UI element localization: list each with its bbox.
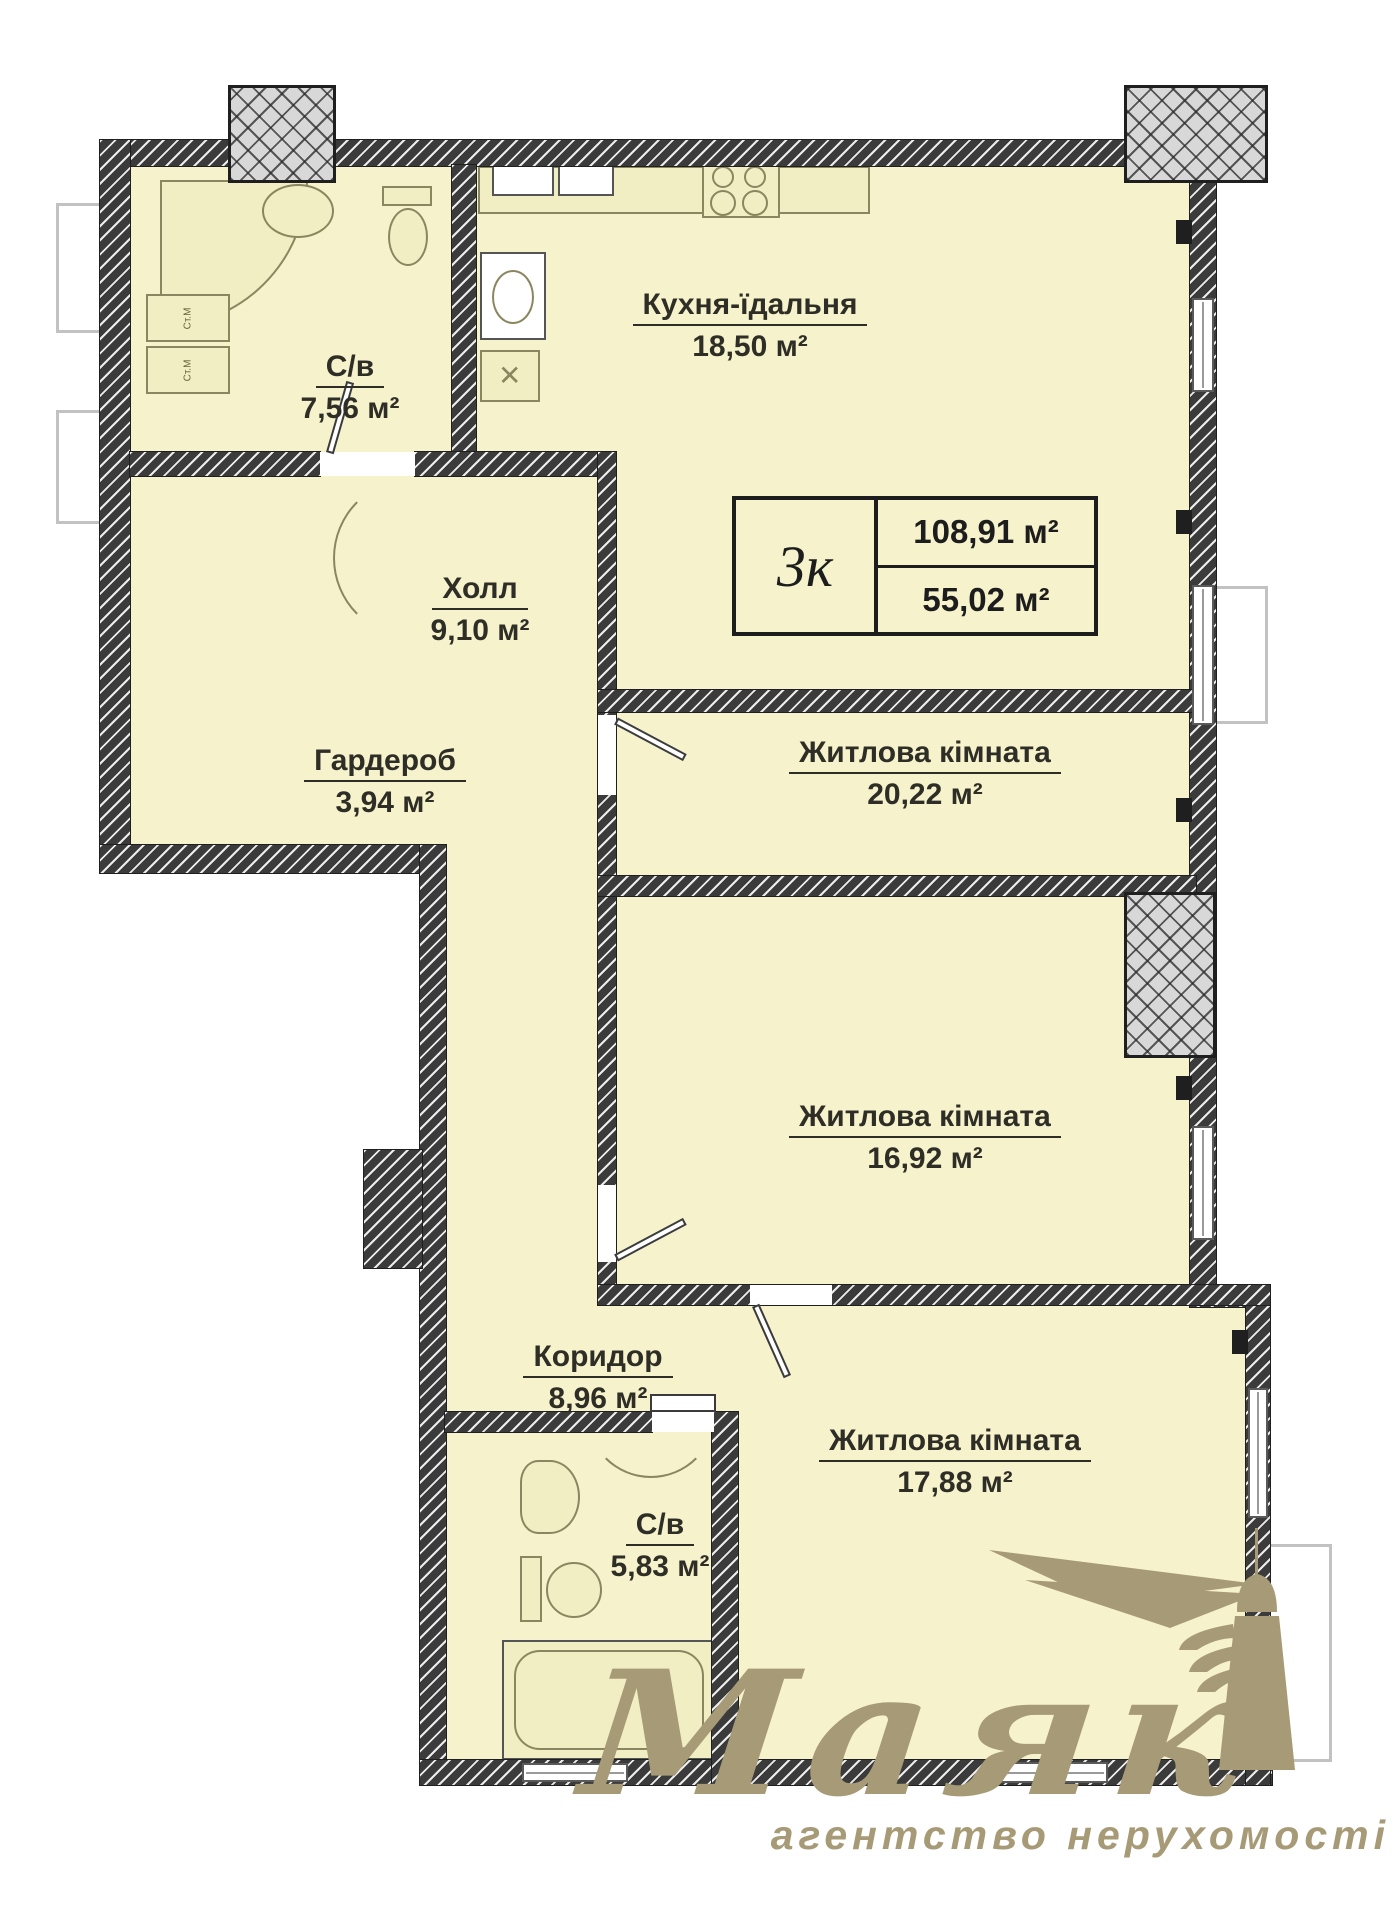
stove-burner-icon [712,166,734,188]
wall-column [364,1150,422,1268]
shaft [1124,892,1216,1058]
room-name: Житлова кімната [789,1100,1061,1138]
room-name: Коридор [523,1340,672,1378]
room-area: 5,83 м² [570,1546,750,1584]
kitchen-unit-x-icon: ✕ [498,362,521,390]
wall [598,690,1196,712]
window [1192,298,1214,392]
room-area: 8,96 м² [488,1378,708,1416]
room-label-bathroom-1: С/в 7,56 м² [250,350,450,426]
room-label-hall: Холл 9,10 м² [390,572,570,648]
window [1192,1126,1214,1240]
wall [415,452,616,476]
room-name: Кухня-їдальня [633,288,868,326]
legend-living-area: 55,02 м² [878,568,1094,633]
legend-box: 3к 108,91 м² 55,02 м² [732,496,1098,636]
room-label-kitchen: Кухня-їдальня 18,50 м² [590,288,910,364]
wall [452,165,476,455]
toilet-icon [520,1556,542,1622]
floor-plan: Ст.М Ст.М ✕ С/в 7,56 м² Кухня-їдальня 18… [0,0,1400,1906]
legend-total-area: 108,91 м² [878,500,1094,568]
room-name: С/в [626,1508,694,1546]
room-name: Житлова кімната [789,736,1061,774]
kitchen-sink-bowl-icon [492,270,534,324]
wall [598,452,616,1290]
sink-icon [262,184,334,238]
legend-rooms-count: 3к [736,500,878,632]
shaft [228,85,336,183]
room-area: 16,92 м² [755,1138,1095,1176]
wall [598,876,1196,896]
wall-tick [1232,1330,1248,1354]
door-opening [598,715,616,795]
room-label-living-3: Житлова кімната 17,88 м² [785,1424,1125,1500]
wall-tick [1176,798,1192,822]
washer-label: Ст.М [183,307,194,329]
wall [598,1285,1270,1305]
washing-machine-icon: Ст.М [146,346,230,394]
room-label-wardrobe: Гардероб 3,94 м² [275,744,495,820]
room-name: Житлова кімната [819,1424,1091,1462]
door-opening [598,1185,616,1262]
door-opening [750,1285,832,1305]
window-niche [56,203,104,333]
legend-areas: 108,91 м² 55,02 м² [878,500,1094,632]
logo-tagline: агентство нерухомості [640,1812,1390,1859]
logo-text: Маяк [575,1648,1265,1820]
stove-burner-icon [744,166,766,188]
room-area: 7,56 м² [250,388,450,426]
wall [100,845,446,873]
room-area: 9,10 м² [390,610,570,648]
room-label-living-2: Житлова кімната 16,92 м² [755,1100,1095,1176]
stove-burner-icon [710,190,736,216]
wall [420,845,446,1785]
wall-tick [1176,220,1192,244]
room-name: Гардероб [304,744,466,782]
washing-machine-icon: Ст.М [146,294,230,342]
room-area: 17,88 м² [785,1462,1125,1500]
toilet-icon [388,208,428,266]
window [1192,585,1214,725]
room-area: 18,50 м² [590,326,910,364]
wall-tick [1176,1076,1192,1100]
room-area: 20,22 м² [755,774,1095,812]
shaft [1124,85,1268,183]
stove-burner-icon [742,190,768,216]
room-name: С/в [316,350,384,388]
toilet-icon [382,186,432,206]
washer-label: Ст.М [183,359,194,381]
door-opening [320,452,415,476]
window [1248,1388,1268,1518]
room-name: Холл [432,572,527,610]
room-label-bathroom-2: С/в 5,83 м² [570,1508,750,1584]
wall-tick [1176,510,1192,534]
room-area: 3,94 м² [275,782,495,820]
wall [130,452,320,476]
room-label-corridor: Коридор 8,96 м² [488,1340,708,1416]
room-label-living-1: Житлова кімната 20,22 м² [755,736,1095,812]
balcony-outline [1214,586,1268,724]
wall [100,140,130,873]
window-niche [56,410,104,524]
